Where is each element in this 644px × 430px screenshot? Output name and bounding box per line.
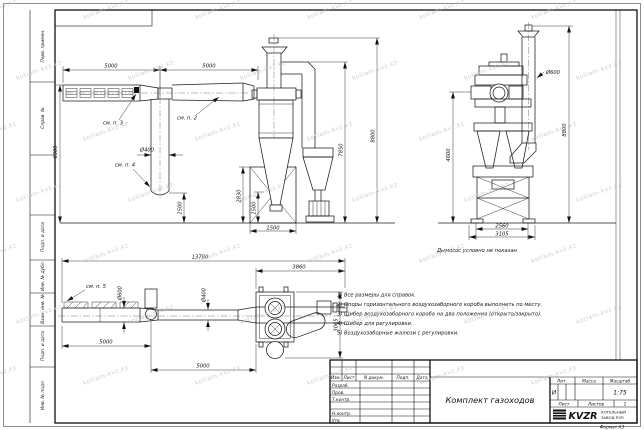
- tb-sheets-value: 1: [624, 401, 627, 407]
- dim-duct-d600: Ø600: [117, 285, 124, 301]
- dim-span1: 5000: [104, 64, 118, 70]
- tb-row-tkontr: Т.контр.: [332, 397, 351, 403]
- dim-stand-height-2830: 2830: [237, 189, 243, 203]
- dim-stack-height-8800: 8800: [371, 129, 377, 143]
- margin-stamps: Перв. примен. Справ. № Подп. и дата Инв.…: [30, 30, 55, 411]
- tb-header-izm: Изм.: [331, 375, 341, 381]
- notes-block: 1) Все размеры для справок. 2) Опоры гор…: [337, 293, 542, 337]
- tb-row-prov: Пров.: [332, 390, 345, 396]
- tb-lit-header: Лит.: [556, 378, 567, 384]
- dim-stack-diameter: Ø600: [545, 69, 561, 76]
- stamp-vzam-inv: Взам. инв. №: [40, 294, 46, 324]
- tb-row-utv: Утв.: [332, 418, 341, 424]
- view-front-elevation: 5000 5000 6300 Ø400 1500 7850 8800 2830 …: [53, 34, 380, 234]
- tb-doc-title: Комплект газоходов: [446, 395, 535, 405]
- note-line-3: 3) Шибер воздухозаборного короба на два …: [337, 312, 542, 318]
- stamp-perv-primen: Перв. примен.: [40, 30, 46, 63]
- drawing-canvas: Перв. примен. Справ. № Подп. и дата Инв.…: [0, 0, 644, 430]
- dim-body-height-4600: 4600: [446, 148, 452, 162]
- note-line-5: 5) Воздухозаборные жалюзи с регулировки.: [337, 331, 459, 337]
- tb-scale-header: Масштаб: [610, 378, 631, 384]
- stamp-sprav-no: Справ. №: [40, 107, 46, 129]
- title-block: Изм. Лист N докум. Подп. Дата Разраб. Пр…: [330, 360, 637, 430]
- tb-lit-value: И: [552, 390, 557, 397]
- tb-header-dokum: N докум.: [364, 375, 384, 381]
- dim-total-length-13700: 13700: [192, 255, 209, 261]
- damper-mark: [134, 87, 139, 93]
- format-note: Формат А3: [600, 425, 625, 430]
- stamp-podp-data-2: Подп. и дата: [40, 331, 46, 361]
- note-line-4: 4) Шибер для регулировки.: [337, 321, 413, 327]
- dim-pipe-diameter: Ø400: [139, 147, 155, 154]
- view-side-cyclone-battery: Ø600 8800 4600 2560 3105 Дымосос условно…: [436, 22, 573, 254]
- caption-fan-hidden: Дымосос условно не показан: [436, 248, 517, 254]
- note-line-2: 2) Опоры горизонтального воздухозаборног…: [337, 302, 542, 308]
- tb-sheets-label: Листов: [587, 401, 605, 407]
- dim-duct-d400: Ø400: [201, 287, 208, 303]
- dim-base-2560: 2560: [495, 224, 509, 230]
- tb-mass-header: Масса: [582, 378, 596, 384]
- tb-row-nkontr: Н.контр.: [332, 411, 351, 417]
- company-logo-text: KVZR: [569, 411, 598, 422]
- callout-p3: см. п. 3: [103, 121, 123, 127]
- dim-drop-1500: 1500: [178, 201, 184, 215]
- callout-p2: см. п. 2: [177, 116, 197, 122]
- sheet-frame: [4, 4, 641, 427]
- tb-scale-value: 1:75: [613, 390, 627, 397]
- dim-stand-width-1500: 1500: [266, 226, 280, 232]
- dim-span2: 5000: [202, 64, 216, 70]
- dim-right-length-3860: 3860: [292, 265, 306, 271]
- tb-header-list: Лист: [343, 375, 355, 381]
- dim-height-6300: 6300: [53, 145, 59, 159]
- tb-header-data: Дата: [415, 375, 427, 381]
- dim-cone-1500: 1500: [252, 201, 258, 215]
- stamp-podp-data-1: Подп. и дата: [40, 222, 46, 252]
- dim-plan-span2: 5000: [196, 364, 210, 370]
- stamp-inv-dubl: Инв. № дубл.: [40, 261, 46, 291]
- stamp-inv-podl: Инв. № подл.: [40, 380, 46, 410]
- company-logo: KVZR КОТЕЛЬНЫЙ ЗАВОД РЭП: [553, 410, 626, 423]
- view-plan: 13700 3860 Ø600 Ø400 3065 5000 5000 см. …: [58, 255, 350, 374]
- tb-row-razrab: Разраб.: [332, 383, 349, 389]
- callout-p5: см. п. 5: [86, 284, 107, 290]
- company-name-line1: КОТЕЛЬНЫЙ: [601, 410, 626, 415]
- dim-plan-span1: 5000: [99, 340, 113, 346]
- callout-p4: см. п. 4: [115, 163, 135, 169]
- dim-duct-height-7850: 7850: [339, 143, 345, 157]
- tb-sheet-label: Лист: [558, 401, 570, 407]
- note-line-1: 1) Все размеры для справок.: [337, 293, 416, 299]
- dim-total-height-8800: 8800: [562, 123, 568, 137]
- drawing-sheet: Перв. примен. Справ. № Подп. и дата Инв.…: [0, 0, 644, 430]
- tb-header-podp: Подп.: [396, 375, 409, 381]
- dim-total-3105: 3105: [495, 232, 509, 238]
- company-name-line2: ЗАВОД РЭП: [601, 415, 624, 420]
